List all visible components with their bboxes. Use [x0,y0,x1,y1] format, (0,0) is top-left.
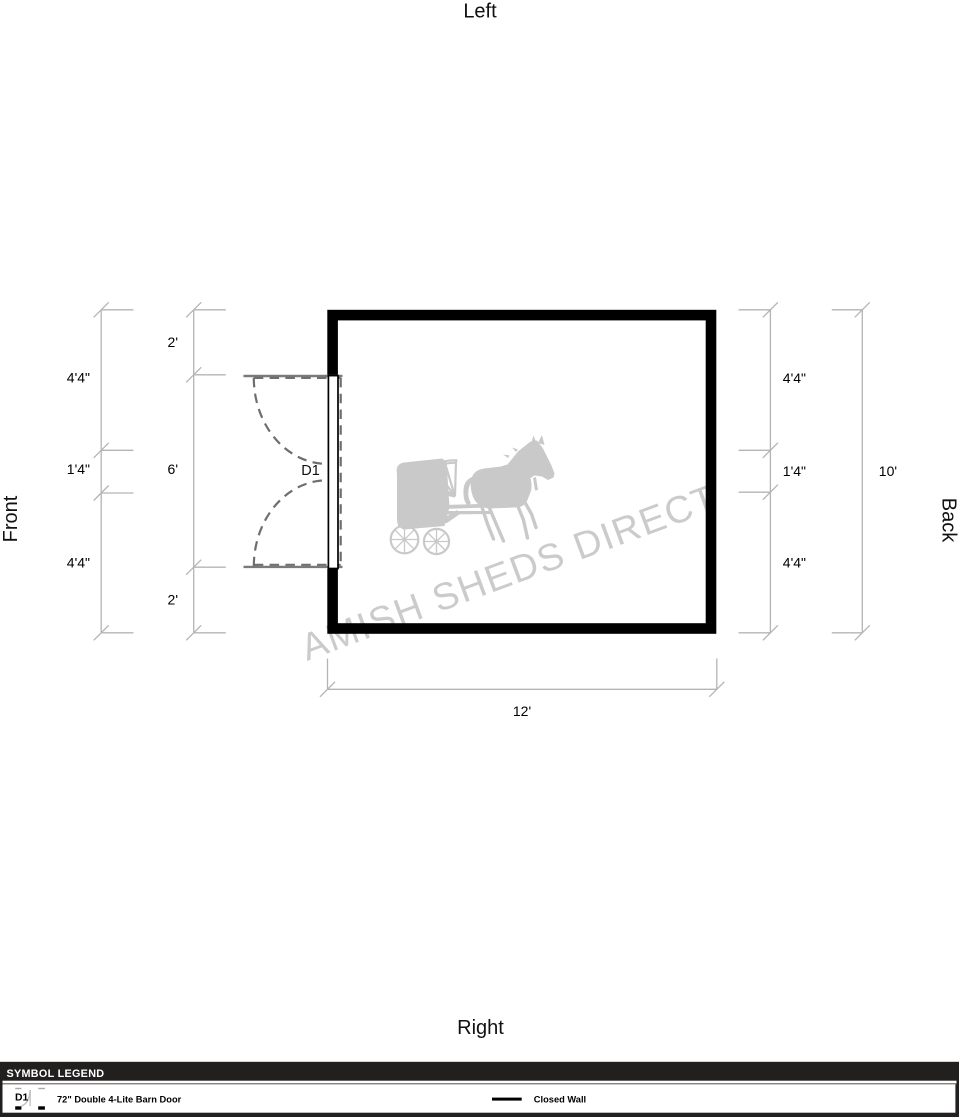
svg-text:Front: Front [0,495,22,542]
svg-text:4'4": 4'4" [783,554,806,570]
svg-text:10': 10' [879,463,897,479]
svg-text:Closed Wall: Closed Wall [534,1095,586,1105]
svg-text:SYMBOL LEGEND: SYMBOL LEGEND [7,1068,105,1080]
svg-text:Back: Back [938,498,959,543]
svg-text:2': 2' [168,334,178,350]
svg-text:1'4": 1'4" [783,463,806,479]
svg-text:Left: Left [463,1,497,23]
svg-text:D1: D1 [301,463,320,479]
svg-text:4'4": 4'4" [67,554,90,570]
svg-text:12': 12' [513,703,531,719]
svg-text:4'4": 4'4" [67,369,90,385]
svg-text:1'4": 1'4" [67,461,90,477]
svg-text:2': 2' [168,591,178,607]
svg-text:6': 6' [168,461,178,477]
svg-text:4'4": 4'4" [783,370,806,386]
svg-text:72" Double 4-Lite Barn Door: 72" Double 4-Lite Barn Door [57,1095,182,1105]
svg-text:Right: Right [457,1017,504,1039]
svg-text:D1: D1 [15,1092,29,1103]
